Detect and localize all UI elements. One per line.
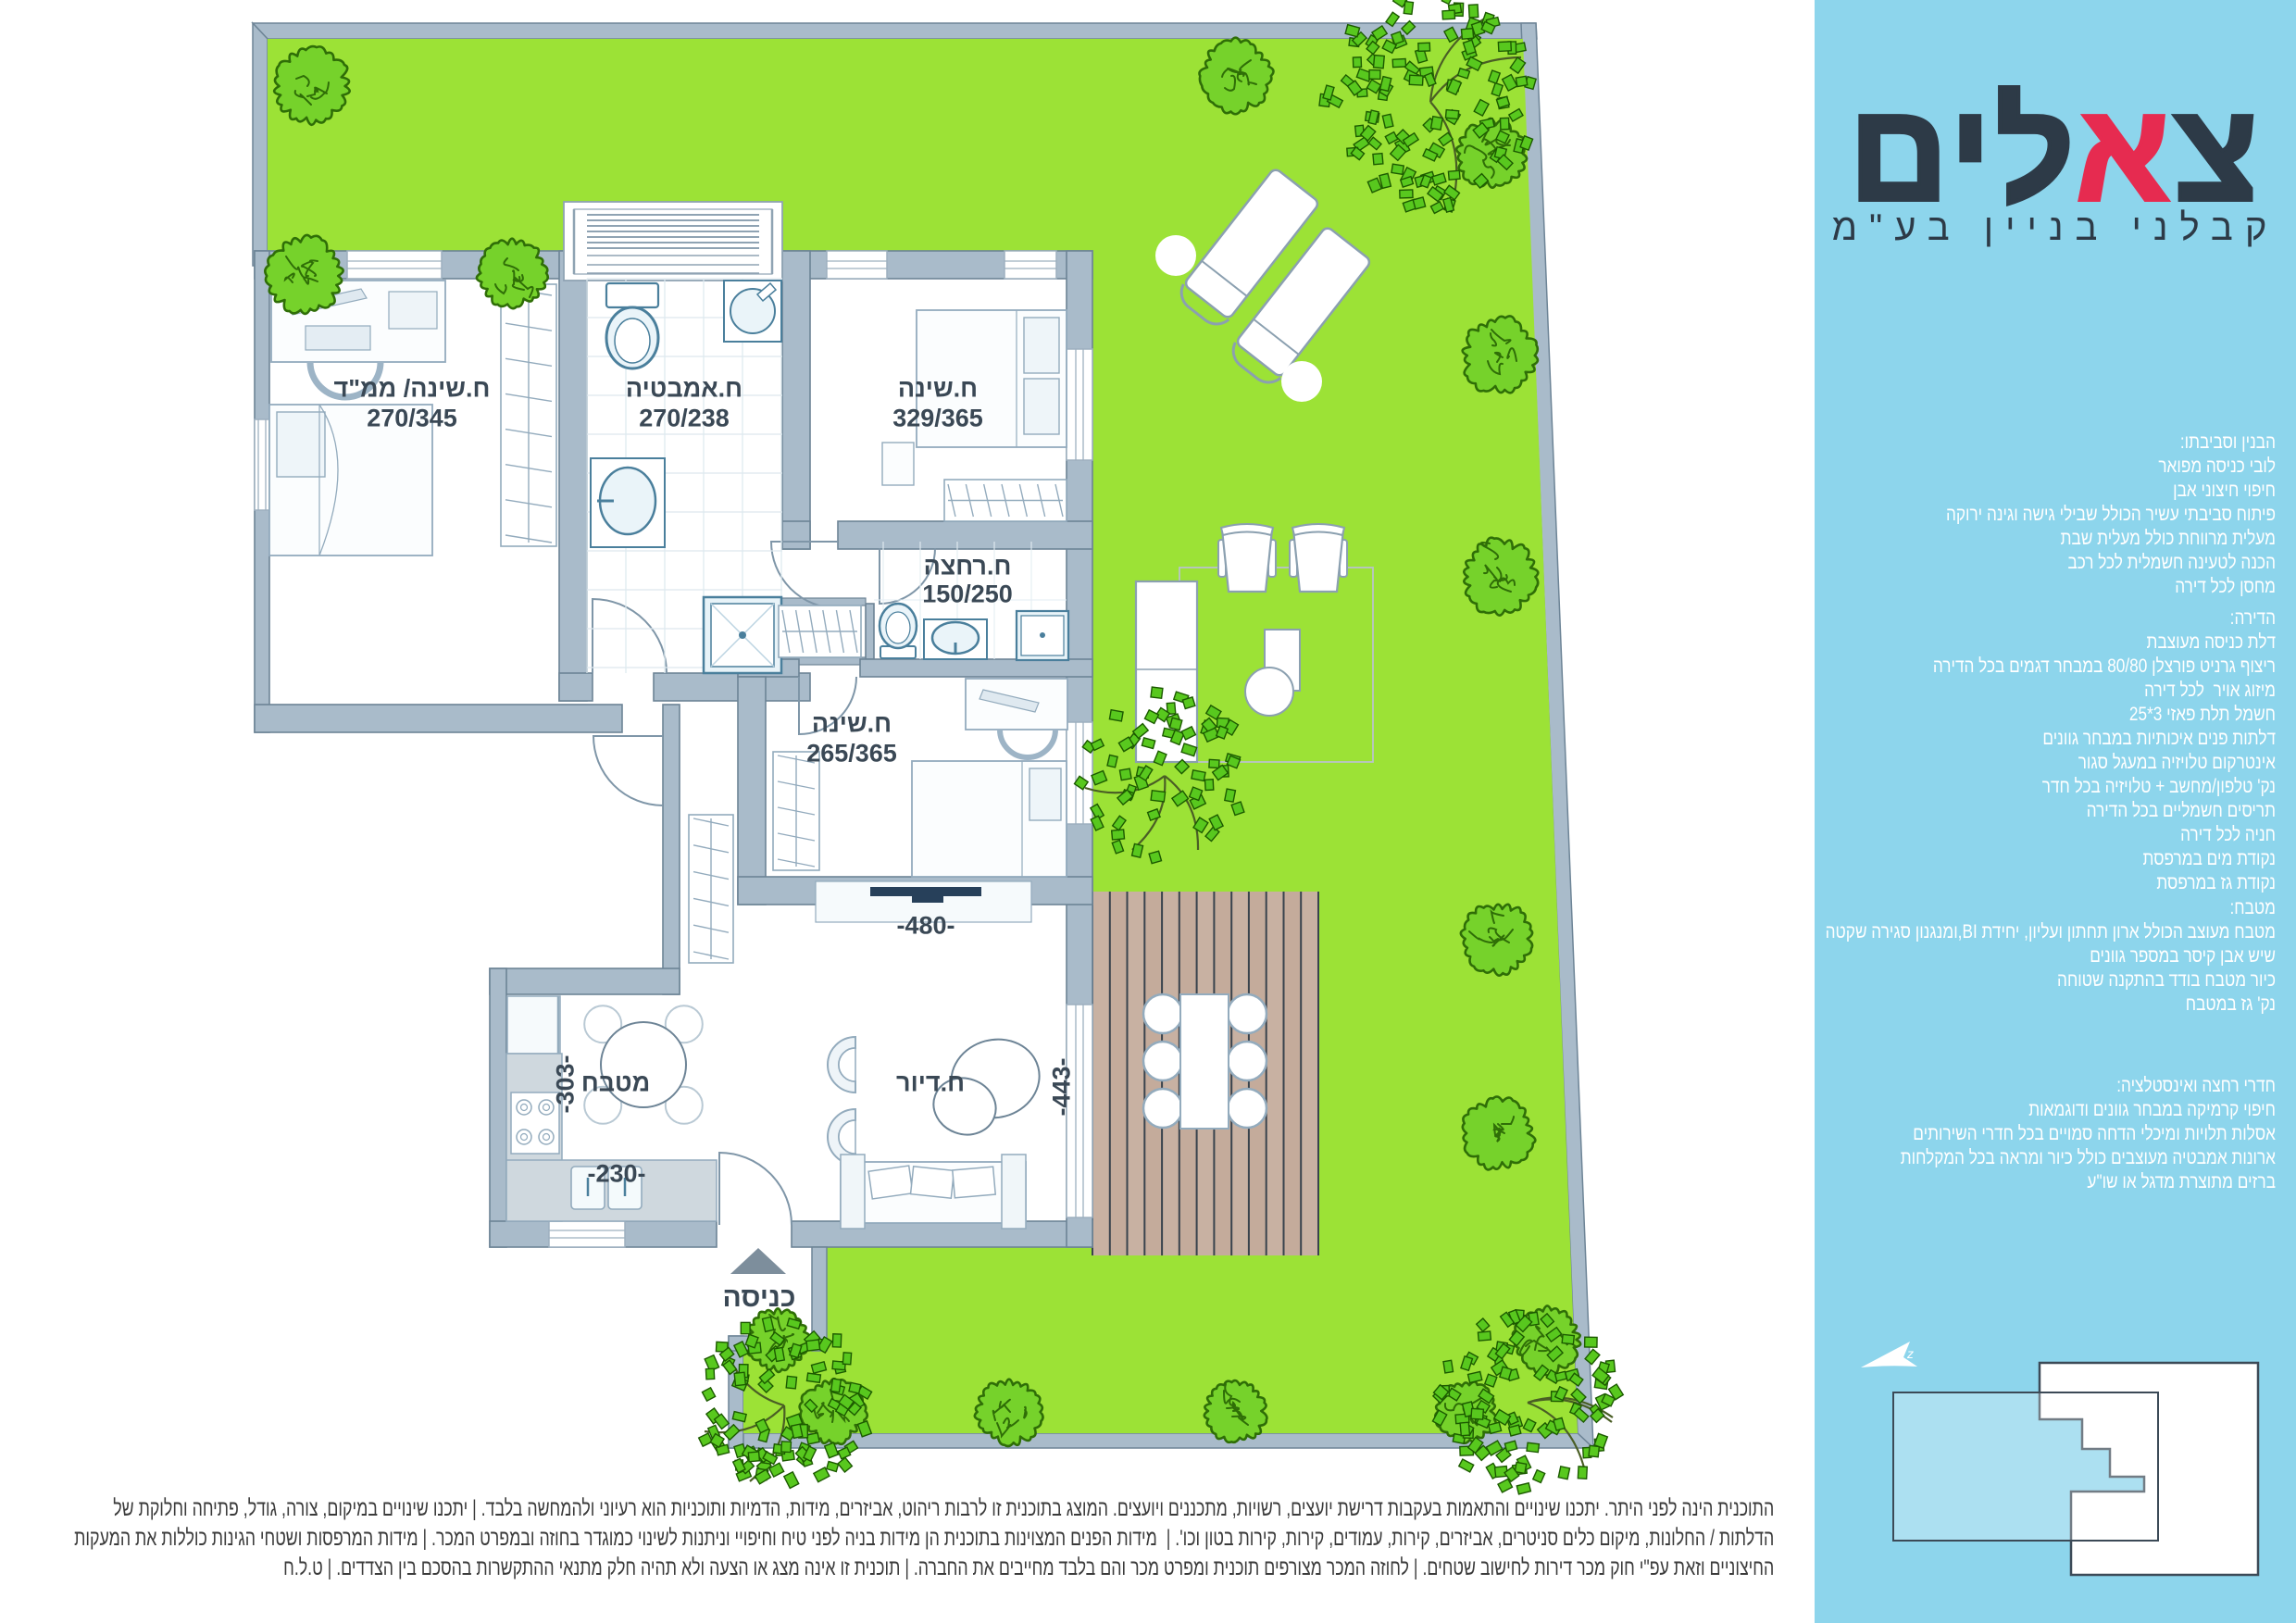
- svg-text:z: z: [1906, 1346, 1914, 1361]
